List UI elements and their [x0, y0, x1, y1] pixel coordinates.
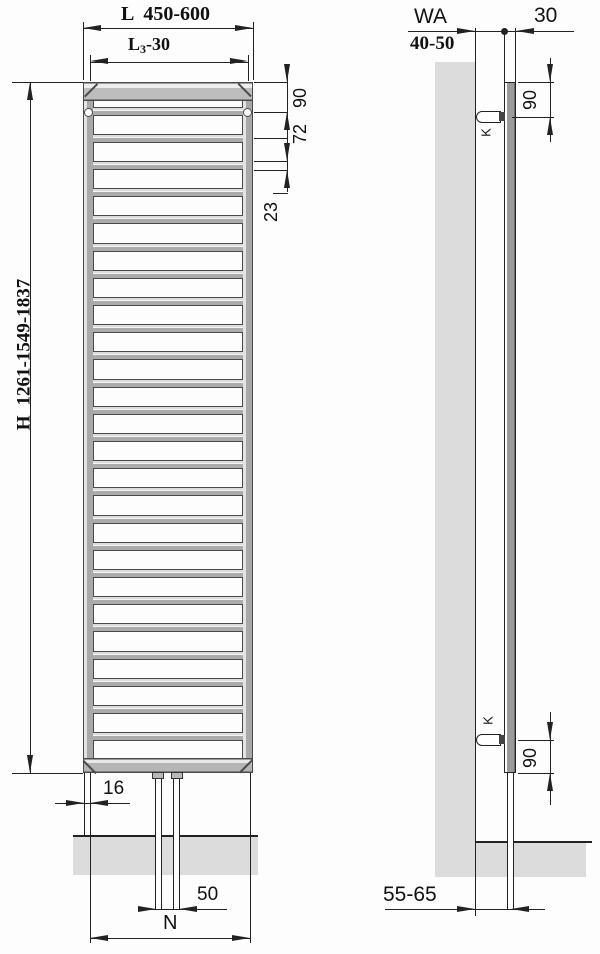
dim-label-WA: WA	[414, 6, 447, 27]
ext-line	[253, 22, 254, 80]
dim-label-30: 30	[534, 5, 557, 26]
arrowhead	[547, 117, 553, 135]
towel-bar	[93, 379, 243, 388]
towel-bar	[93, 515, 243, 524]
dim-line-N	[90, 938, 250, 939]
bracket-label-K-bottom: K	[482, 714, 495, 728]
dim-label-H: H1261-1549-1837	[15, 255, 34, 455]
dim-H-value: 1261-1549-1837	[14, 279, 35, 406]
dim-label-WA-value: 40-50	[410, 34, 454, 53]
floor-line-side	[476, 841, 592, 843]
dim-label-L3: L3-30	[128, 35, 170, 55]
side-pipe	[507, 773, 514, 910]
dim-label-L: L450-600	[121, 4, 210, 24]
towel-bar	[93, 651, 243, 660]
ext-line	[515, 28, 516, 82]
towel-bar	[93, 243, 243, 252]
dim-line-WA-30	[408, 31, 574, 32]
towel-bar	[93, 215, 243, 224]
arrowhead	[66, 800, 84, 806]
dim-label-90-front: 90	[291, 83, 309, 113]
arrowhead	[284, 143, 290, 161]
supply-pipe-left	[155, 779, 162, 910]
ext-line	[12, 773, 83, 774]
dim-label-N: N	[163, 913, 177, 933]
leader-line	[273, 193, 288, 194]
towel-bar	[93, 460, 243, 469]
dim-label-23: 23	[262, 197, 280, 227]
ext-line	[518, 82, 554, 83]
towel-bar	[93, 678, 243, 687]
towel-bar	[93, 297, 243, 306]
mounting-bracket-bottom	[476, 734, 501, 746]
arrowhead	[90, 58, 108, 64]
wall	[435, 62, 475, 877]
dim-label-55-65: 55-65	[383, 884, 437, 905]
ext-line	[504, 28, 505, 82]
arrowhead	[547, 722, 553, 740]
ext-line	[254, 112, 288, 113]
arrowhead	[179, 906, 197, 912]
ext-line	[254, 138, 288, 139]
arrowhead	[284, 170, 290, 188]
towel-bar	[93, 705, 243, 714]
arrowhead	[457, 906, 475, 912]
towel-bar	[93, 107, 243, 116]
hanger-hole-right	[243, 108, 252, 117]
dim-label-90-side-top: 90	[521, 85, 539, 115]
towel-bar	[93, 270, 243, 279]
arrowhead	[284, 64, 290, 82]
wall-surface-line	[475, 28, 476, 916]
dim-L-prefix: L	[121, 3, 134, 25]
arrowhead	[90, 935, 108, 941]
ext-line	[248, 55, 249, 81]
header-collector	[83, 82, 253, 101]
dim-label-50: 50	[197, 885, 218, 904]
dim-label-90-side-bottom: 90	[521, 743, 539, 773]
dim-H-prefix: H	[14, 415, 35, 430]
ext-line	[12, 82, 83, 83]
arrowhead	[90, 800, 108, 806]
towel-bar	[93, 732, 243, 741]
arrowhead	[457, 28, 475, 34]
ext-line	[254, 82, 288, 83]
radiator-side-profile	[504, 82, 516, 773]
connection-stub	[152, 772, 164, 779]
dim-label-16: 16	[103, 779, 124, 798]
arrowhead	[547, 64, 553, 82]
ext-line	[254, 170, 288, 171]
ext-line	[250, 773, 251, 943]
towel-bar	[93, 623, 243, 632]
towel-bar	[93, 596, 243, 605]
towel-bar	[93, 161, 243, 170]
arrowhead	[27, 755, 33, 773]
towel-bar	[93, 351, 243, 360]
bracket-clamp	[499, 112, 505, 121]
dim-line-L3	[90, 62, 249, 63]
dim-line-L	[83, 28, 254, 29]
dim-L-value: 450-600	[143, 3, 210, 25]
arrowhead	[27, 82, 33, 100]
arrowhead	[230, 58, 248, 64]
ext-line	[84, 773, 85, 835]
dim-L3-value: -30	[146, 34, 170, 54]
towel-bar	[93, 324, 243, 333]
towel-bar	[93, 188, 243, 197]
dim-L3-prefix: L	[128, 34, 140, 54]
side-tube-right	[242, 84, 253, 773]
arrowhead	[235, 25, 253, 31]
towel-bar	[93, 433, 243, 442]
arrowhead	[547, 773, 553, 791]
ext-line	[518, 740, 554, 741]
ext-line	[90, 773, 91, 943]
arrowhead	[516, 28, 534, 34]
arrowhead	[232, 935, 250, 941]
arrowhead	[138, 906, 156, 912]
connection-stub	[171, 772, 183, 779]
technical-drawing: L450-600 L3-30 H1261-1549-1837 90 72 23 …	[0, 0, 600, 954]
mounting-bracket-top	[476, 111, 501, 123]
bracket-clamp	[499, 735, 505, 744]
dim-dot	[501, 28, 508, 35]
arrowhead	[83, 25, 101, 31]
bracket-label-K-top: K	[480, 126, 493, 140]
towel-bar	[93, 406, 243, 415]
towel-bar	[93, 569, 243, 578]
towel-bar	[93, 134, 243, 143]
ext-line	[254, 161, 288, 162]
footer-collector	[83, 758, 253, 773]
floor-slab-front	[73, 836, 258, 875]
hanger-hole-left	[84, 108, 93, 117]
towel-bar	[93, 487, 243, 496]
supply-pipe-right	[173, 779, 180, 910]
dim-label-72: 72	[291, 119, 309, 149]
arrowhead	[511, 906, 529, 912]
towel-bar	[93, 542, 243, 551]
floor-line-front	[73, 835, 258, 837]
